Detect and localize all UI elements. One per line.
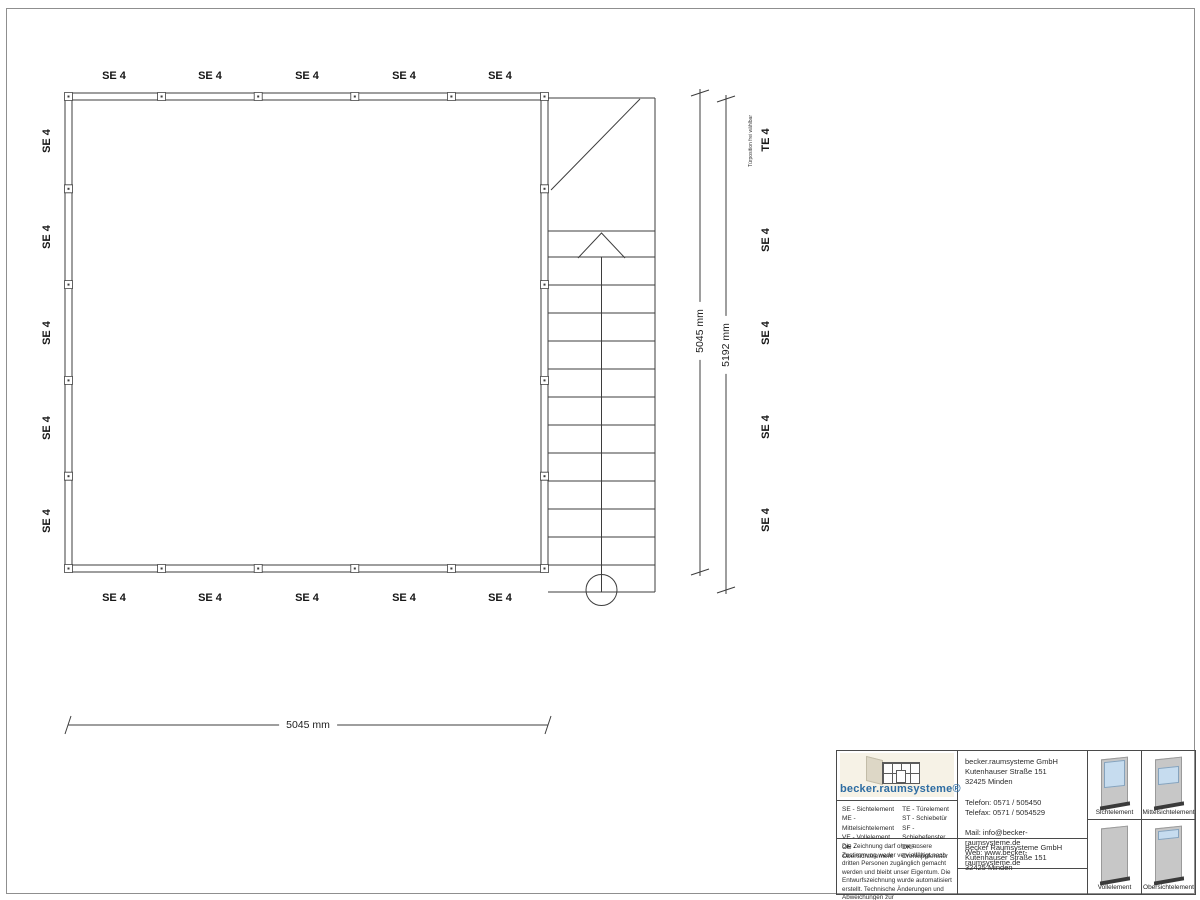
panel-graphic (1101, 757, 1128, 808)
logo-background: becker.raumsysteme® (840, 753, 954, 797)
element-label-left-5: SE 4 (41, 509, 53, 533)
door-swing-line (551, 99, 640, 190)
staircase (548, 98, 655, 606)
company-logo: becker.raumsysteme® (837, 751, 958, 801)
legend-item: ST - Schiebetür (902, 814, 952, 823)
partition-illustration (866, 757, 930, 783)
element-label-top-5: SE 4 (488, 70, 512, 82)
thumbnail-vollelement: Vollelement (1088, 820, 1141, 894)
element-label-left-1: SE 4 (41, 129, 53, 153)
dim-label-horizontal: 5045 mm (279, 719, 337, 731)
thumbnail-sichtelement: Sichtelement (1088, 751, 1141, 820)
logo-wordmark: becker.raumsysteme® (840, 783, 954, 795)
wall-joints (65, 93, 549, 573)
element-label-bottom-2: SE 4 (198, 592, 222, 604)
element-label-left-4: SE 4 (41, 416, 53, 440)
element-label-right-2: SE 4 (760, 228, 772, 252)
copyright-disclaimer: Die Zeichnung darf ohne unsere Zustimmun… (837, 839, 958, 894)
glass-pane (1158, 766, 1179, 785)
legend-item: SE - Sichtelement (842, 805, 894, 814)
abbreviation-legend: SE - Sichtelement ME - Mittelsichtelemen… (837, 801, 958, 839)
element-label-top-1: SE 4 (102, 70, 126, 82)
legend-item: TE - Türelement (902, 805, 952, 814)
thumbnail-label: Mittelsichtelement (1142, 809, 1194, 816)
element-label-left-3: SE 4 (41, 321, 53, 345)
logo-wall-shape (866, 756, 883, 785)
legend-item: ME - Mittelsichtelement (842, 814, 894, 833)
logo-door-shape (896, 770, 906, 783)
element-label-top-2: SE 4 (198, 70, 222, 82)
company-owner: Becker Raumsysteme GmbH Kutenhauser Stra… (958, 839, 1088, 869)
drawing-sheet: SE 4 SE 4 SE 4 SE 4 SE 4 SE 4 SE 4 SE 4 … (0, 0, 1200, 900)
element-label-top-3: SE 4 (295, 70, 319, 82)
element-label-right-3: SE 4 (760, 321, 772, 345)
stair-direction-arrow (578, 233, 625, 258)
disclaimer-text: Die Zeichnung darf ohne unsere Zustimmun… (842, 843, 952, 900)
glass-pane (1104, 760, 1125, 788)
door-position-note: Türposition frei wählbar (748, 115, 754, 167)
element-label-top-4: SE 4 (392, 70, 416, 82)
panel-graphic (1155, 826, 1182, 883)
panel-graphic (1101, 826, 1128, 883)
room-walls (65, 93, 548, 572)
element-label-bottom-1: SE 4 (102, 592, 126, 604)
element-label-bottom-5: SE 4 (488, 592, 512, 604)
company-contact: becker.raumsysteme GmbH Kutenhauser Stra… (958, 751, 1088, 839)
thumbnail-obersichtelement: Obersichtelement (1141, 820, 1195, 894)
glass-pane (1158, 829, 1179, 840)
dim-label-vertical-outer: 5192 mm (720, 316, 732, 374)
element-label-right-5: SE 4 (760, 508, 772, 532)
element-label-right-4: SE 4 (760, 415, 772, 439)
empty-cell (958, 869, 1088, 894)
thumbnail-mittelsichtelement: Mittelsichtelement (1141, 751, 1195, 820)
title-block: becker.raumsysteme® SE - Sichtelement ME… (836, 750, 1196, 895)
element-label-left-2: SE 4 (41, 225, 53, 249)
element-label-bottom-4: SE 4 (392, 592, 416, 604)
panel-graphic (1155, 757, 1182, 808)
thumbnail-label: Obersichtelement (1143, 884, 1194, 891)
element-label-right-1: TE 4 (760, 128, 772, 151)
dim-label-vertical-inner: 5045 mm (694, 302, 706, 360)
dimension-lines (65, 89, 735, 734)
element-label-bottom-3: SE 4 (295, 592, 319, 604)
